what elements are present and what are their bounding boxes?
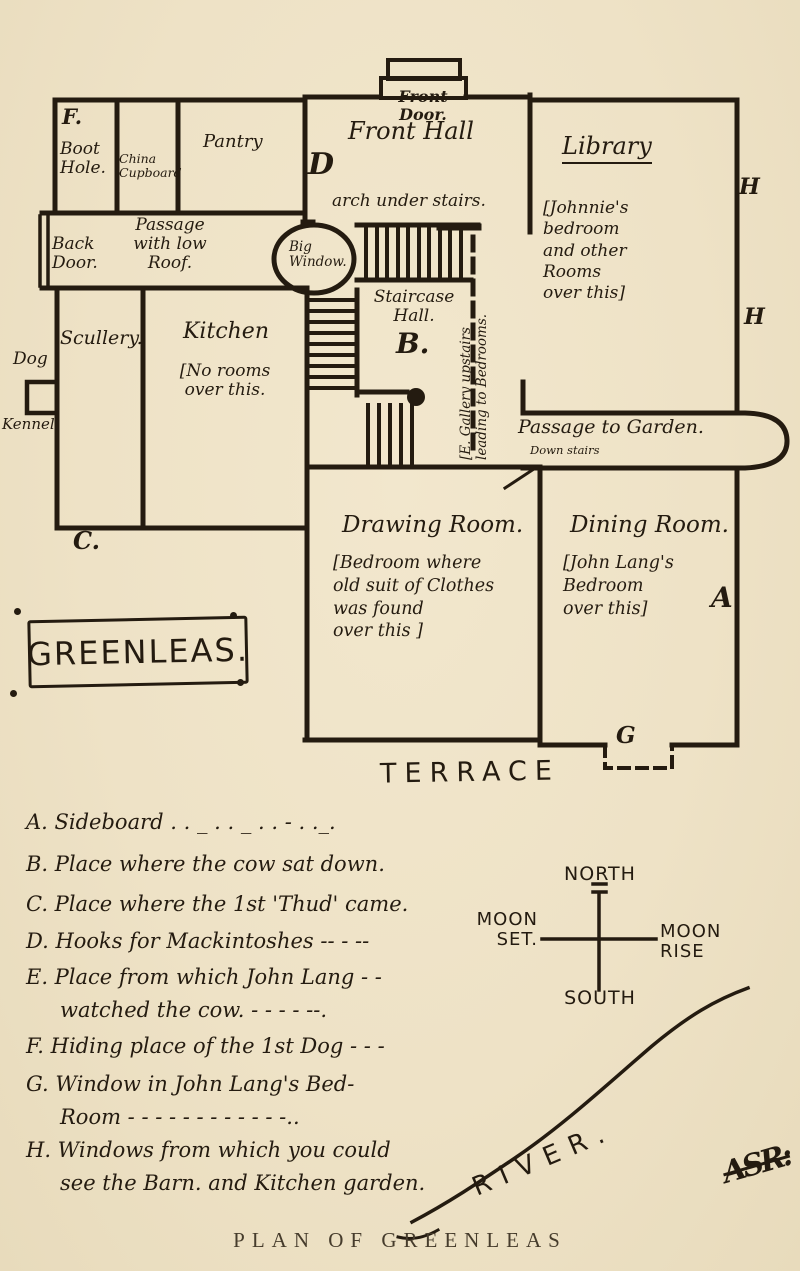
plan-of-greenleas-page: { "caption": "PLAN OF GREENLEAS", "color… [0,0,800,1271]
corner-dot-br [237,679,244,686]
g-window-dashes [605,746,672,768]
dog-kennel-square [27,382,57,413]
legend-item-f: F. Hiding place of the 1st Dog - - - [26,1030,500,1063]
passage-low-roof-label: Passage with low Roof. [112,216,228,273]
house-name-box: GREENLEAS. [27,616,248,689]
library-note: [Johnnie's bedroom and other Rooms over … [543,198,628,304]
back-door-label: Back Door. [52,235,98,273]
corner-dot-tr [230,612,237,619]
library-label: Library [562,133,652,164]
legend-item-c: C. Place where the 1st 'Thud' came. [26,888,500,921]
kitchen-note: [No rooms over this. [160,362,290,400]
stairs-upper-treads [366,225,461,280]
stairs-left-treads [308,300,357,388]
staircase-hall-label: Staircase Hall. [366,288,462,326]
legend-item-b: B. Place where the cow sat down. [26,848,500,881]
pantry-label: Pantry [203,132,263,152]
compass-moon-rise-label: MOON RISE [660,922,721,962]
legend-item-e: E. Place from which John Lang - - watche… [26,961,500,1026]
legend-item-g: G. Window in John Lang's Bed- Room - - -… [26,1068,500,1133]
compass-north-label: NORTH [558,864,642,885]
drawing-room-label: Drawing Room. [342,513,523,539]
drawing-room-note: [Bedroom where old suit of Clothes was f… [333,552,494,643]
marker-c: C. [73,528,100,555]
dining-room-note: [John Lang's Bedroom over this] [563,552,674,620]
corner-dot-bl [10,690,17,697]
dining-room-label: Dining Room. [570,513,729,539]
marker-f: F. [62,105,82,129]
marker-a: A [711,582,733,613]
compass-south-label: SOUTH [558,988,642,1009]
china-cupboard-label: China Cupboard [119,152,182,180]
marker-b: B. [396,328,429,359]
gallery-note-rotated: [E. Gallery upstairs leading to Bedrooms… [458,228,490,460]
marker-h-upper: H [739,175,760,200]
legend-item-a: A. Sideboard . . _ . . _ . . - . ._. [26,806,500,839]
legend-item-h: H. Windows from which you could see the … [26,1134,500,1199]
down-stairs-label: Down stairs [530,444,600,457]
kitchen-label: Kitchen [183,320,269,345]
front-hall-label: Front Hall [348,118,474,145]
arch-under-stairs-label: arch under stairs. [332,192,486,211]
page-caption: PLAN OF GREENLEAS [0,1228,800,1253]
legend-item-d: D. Hooks for Mackintoshes -- - -- [26,925,500,958]
marker-h-lower: H [744,305,765,330]
marker-g: G [616,723,636,749]
newel-post-dot [407,388,425,406]
corner-dot-tl [14,608,21,615]
stairs-down-treads [368,405,412,465]
house-name-label: GREENLEAS. [27,631,250,674]
compass-moon-set-label: MOON SET. [474,910,538,950]
back-door-lines [40,216,48,286]
marker-d: D [308,148,334,182]
compass-cross [542,884,656,990]
kennel-label: Kennel [2,416,55,433]
big-window-label: Big Window. [289,240,347,270]
scullery-label: Scullery. [60,328,143,349]
boot-hole-label: Boot Hole. [60,140,106,178]
terrace-label: TERRACE [380,756,560,789]
dog-label: Dog [13,350,48,369]
passage-garden-label: Passage to Garden. [518,417,704,438]
